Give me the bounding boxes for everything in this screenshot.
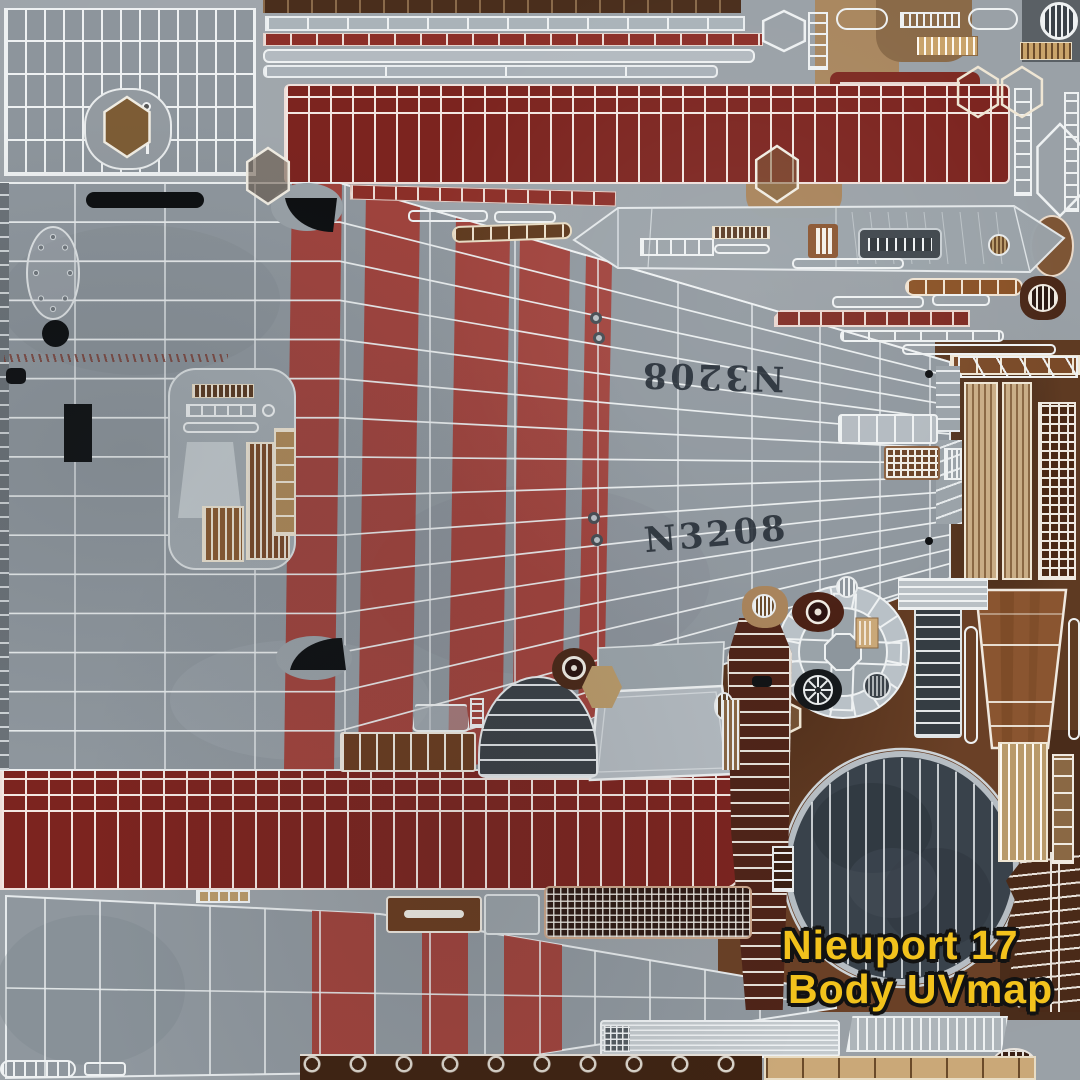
gauge-screw bbox=[262, 404, 275, 417]
left-edge-rib-strip bbox=[0, 183, 9, 770]
radiator-mesh bbox=[544, 886, 752, 939]
tan-seg-small bbox=[196, 890, 250, 903]
slat-strip-2 bbox=[846, 1016, 1008, 1052]
tan-panel-right-of-disc bbox=[998, 742, 1048, 862]
white-strip-a bbox=[408, 210, 488, 222]
black-access-rect bbox=[64, 404, 92, 462]
slate-ladder-panel bbox=[914, 606, 962, 738]
tan-block-strip bbox=[764, 1056, 1036, 1080]
strip-h8 bbox=[902, 344, 1056, 355]
white-strip-b bbox=[494, 211, 556, 223]
slat-block-above bbox=[898, 578, 988, 610]
mini-gauge-dot bbox=[571, 665, 577, 671]
black-pill-small bbox=[6, 368, 26, 384]
cowling-ring bbox=[777, 586, 909, 718]
cockpit-fittings-island bbox=[168, 368, 296, 570]
white-pill-strip bbox=[964, 626, 978, 744]
deck-strip bbox=[714, 244, 770, 254]
strip-h0 bbox=[792, 258, 904, 269]
wood-comb-panel-b bbox=[202, 506, 244, 562]
uv-texture-atlas: N3208 N3208 Nieuport 17 Body UVmap bbox=[0, 0, 1080, 1080]
deck-grille-brown bbox=[712, 226, 770, 239]
seg-pill-bottomleft bbox=[0, 1060, 76, 1078]
inspection-hatch-oval bbox=[26, 226, 80, 320]
deck-window-glass bbox=[814, 228, 832, 254]
ladder-squares-column bbox=[1052, 754, 1074, 864]
plywood-plank-1 bbox=[964, 382, 998, 580]
strip-h5 bbox=[932, 294, 990, 306]
gray-plate bbox=[484, 894, 540, 935]
white-pill-strip-right bbox=[1068, 618, 1080, 740]
strip-red-seg bbox=[774, 310, 970, 327]
barrel-striped bbox=[1028, 284, 1058, 312]
mini-ladder-ws bbox=[470, 698, 484, 728]
title-line-2: Body UVmap bbox=[788, 966, 1053, 1013]
hook-comb-strip bbox=[300, 1054, 762, 1080]
gray-wedge-1 bbox=[936, 366, 960, 432]
tan-ladder-block bbox=[274, 428, 296, 536]
louver-grid-block bbox=[604, 1026, 630, 1052]
strip-h4 bbox=[832, 296, 924, 308]
deck-cells-row bbox=[640, 238, 714, 256]
stitching-zigzag bbox=[4, 354, 228, 362]
wood-trapezoid-panel bbox=[976, 590, 1066, 748]
diag-hatch-strip bbox=[958, 356, 1078, 378]
white-trapezoid-panel bbox=[412, 704, 470, 732]
mini-ladder-left bbox=[772, 846, 794, 892]
lattice-ladder bbox=[1038, 402, 1076, 580]
wood-plate-slot bbox=[404, 910, 464, 918]
black-slab-top bbox=[86, 192, 204, 208]
louver-strip bbox=[600, 1020, 840, 1058]
tail-striped-block bbox=[944, 448, 962, 480]
black-pill-cowl bbox=[752, 676, 772, 687]
instrument-grille bbox=[192, 384, 254, 398]
title-line-1: Nieuport 17 bbox=[782, 922, 1019, 969]
serial-number-top-rotated: N3208 bbox=[639, 354, 784, 399]
instrument-segstrip bbox=[186, 404, 256, 417]
rib-block-right bbox=[722, 700, 740, 770]
instrument-strip bbox=[183, 422, 259, 433]
wood-cell-bar bbox=[340, 732, 476, 772]
fuel-cap-circle bbox=[42, 320, 69, 347]
tail-slat-panel bbox=[838, 414, 938, 444]
striped-disc-left bbox=[752, 594, 776, 618]
deck-striped-disc bbox=[988, 234, 1010, 256]
deck-vent-comb bbox=[868, 238, 932, 251]
striped-disc-above-ring bbox=[836, 576, 858, 598]
tail-grid-block bbox=[884, 446, 940, 480]
strip-h7 bbox=[840, 330, 1004, 342]
uv-wireframe-layer bbox=[0, 0, 1080, 1080]
plywood-plank-2 bbox=[1002, 382, 1032, 580]
windscreen-panels bbox=[590, 642, 734, 780]
small-strip-bottomleft bbox=[84, 1062, 126, 1076]
